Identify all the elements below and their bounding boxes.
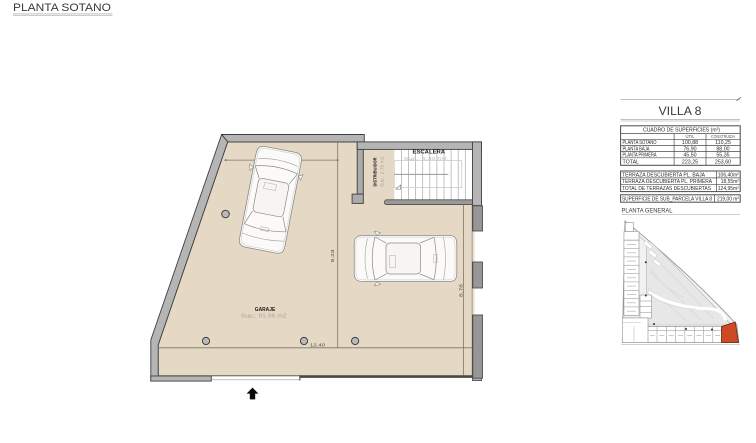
svg-text:110,25: 110,25 (715, 140, 731, 146)
svg-text:SUPERFICIE DE SUB_PARCELA VILL: SUPERFICIE DE SUB_PARCELA VILLA 8 (622, 196, 712, 202)
svg-text:Sup.: 2.70 m2: Sup.: 2.70 m2 (380, 156, 385, 187)
svg-text:CONSTRUIDA: CONSTRUIDA (711, 134, 735, 139)
svg-text:PLANTA SOTANO: PLANTA SOTANO (13, 2, 111, 14)
svg-text:TERRAZA DESCUBIERTA PL. BAJA: TERRAZA DESCUBIERTA PL. BAJA (622, 172, 705, 178)
svg-text:PLANTA BAJA: PLANTA BAJA (623, 146, 650, 152)
svg-text:DISTRIBUIDOR: DISTRIBUIDOR (373, 157, 378, 187)
svg-text:253,60: 253,60 (715, 160, 731, 166)
svg-text:PLANTA GENERAL: PLANTA GENERAL (622, 208, 673, 215)
svg-text:8.78: 8.78 (459, 284, 465, 297)
svg-text:223,25: 223,25 (682, 160, 698, 166)
svg-text:45,50: 45,50 (683, 153, 696, 159)
svg-text:PLANTA SOTANO: PLANTA SOTANO (623, 140, 657, 146)
svg-text:12.40: 12.40 (310, 343, 325, 349)
svg-text:TOTAL: TOTAL (623, 160, 640, 166)
svg-text:106,40m²: 106,40m² (718, 172, 739, 178)
svg-text:ÚTIL: ÚTIL (685, 134, 695, 139)
svg-text:CUADRO DE SUPERFICIES (m²): CUADRO DE SUPERFICIES (m²) (643, 128, 720, 134)
svg-text:Sup.: 91.95 m2: Sup.: 91.95 m2 (241, 313, 287, 319)
svg-text:100,88: 100,88 (682, 140, 698, 146)
svg-text:TERRAZA DESCUBIERTA PL. PRIMER: TERRAZA DESCUBIERTA PL. PRIMERA (622, 179, 712, 185)
svg-text:PLANTA PRIMERA: PLANTA PRIMERA (623, 153, 657, 159)
svg-text:76,90: 76,90 (683, 146, 696, 152)
svg-text:55,35: 55,35 (716, 153, 729, 159)
svg-text:18,55m²: 18,55m² (721, 179, 739, 185)
svg-text:124,95m²: 124,95m² (718, 186, 739, 192)
svg-text:Sup.: 6.20 m2: Sup.: 6.20 m2 (404, 156, 448, 161)
svg-text:88,00: 88,00 (716, 146, 729, 152)
svg-text:9.23: 9.23 (330, 249, 336, 262)
svg-text:TOTAL DE TERRAZAS DESCUBIERTAS: TOTAL DE TERRAZAS DESCUBIERTAS (622, 186, 711, 192)
svg-text:VILLA 8: VILLA 8 (659, 104, 702, 118)
svg-text:GARAJE: GARAJE (255, 307, 276, 313)
svg-text:219,00 m²: 219,00 m² (717, 196, 739, 202)
svg-text:ESCALERA: ESCALERA (413, 149, 446, 155)
